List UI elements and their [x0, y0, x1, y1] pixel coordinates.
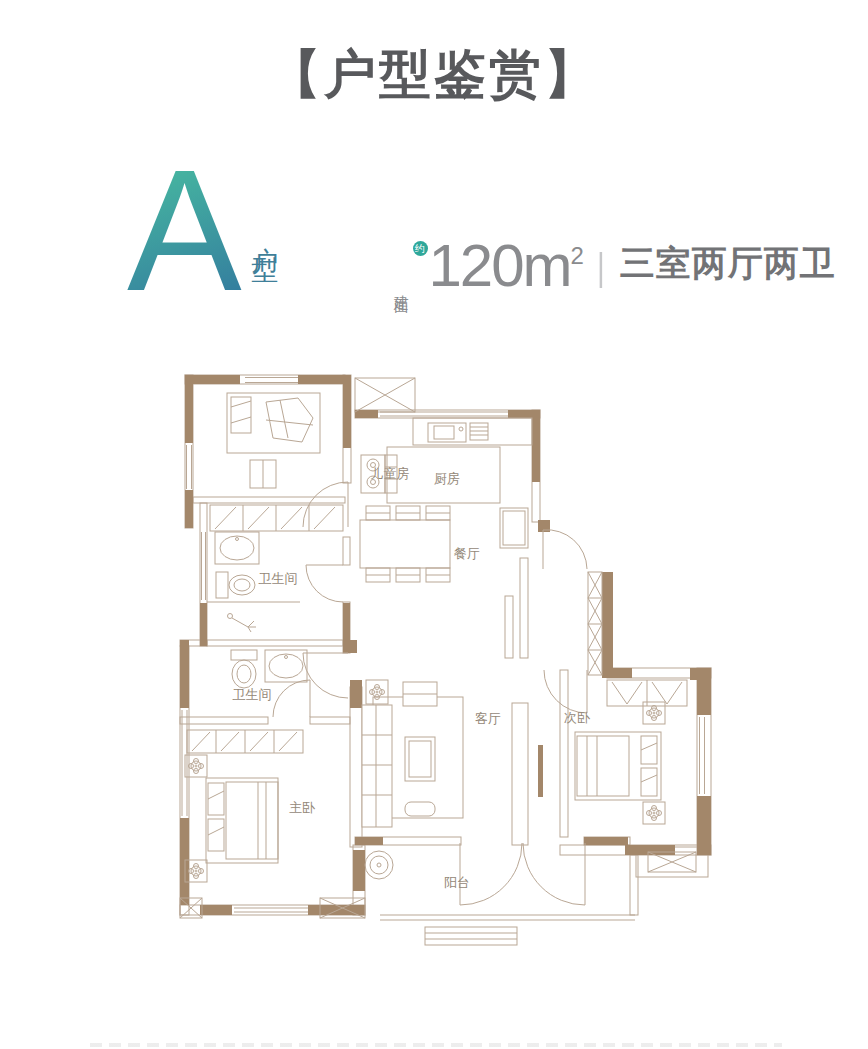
room-label: 主卧: [289, 800, 316, 815]
room-label: 阳台: [444, 875, 470, 890]
master-bed: [185, 755, 278, 882]
approx-badge: 约: [413, 241, 428, 256]
area-superscript: 2: [571, 242, 584, 269]
unit-spec: 建面 约 120m2 | 三室两厅两卫: [393, 242, 836, 290]
room-label: 儿童房: [371, 466, 410, 481]
windows: [182, 378, 705, 946]
layout-text: 三室两厅两卫: [620, 240, 836, 287]
dining-table: [360, 506, 450, 582]
bath2-fixtures: [231, 650, 307, 688]
room-label: 客厅: [475, 711, 501, 726]
child-desk: [250, 460, 276, 488]
page-title: 【户型鉴赏】: [0, 40, 868, 110]
unit-type-label: 户型: [247, 225, 283, 355]
room-label: 次卧: [564, 710, 591, 725]
washing-machine: [365, 851, 393, 879]
floorplan-svg: 儿童房厨房餐厅卫生间卫生间主卧客厅次卧阳台: [170, 350, 730, 960]
footer-disclaimer-cropped: [90, 1043, 782, 1047]
page: 【户型鉴赏】 A 户型 建面 约 120m2 | 三室两厅两卫: [0, 0, 868, 1049]
room-label: 餐厅: [454, 546, 480, 561]
room-label: 卫生间: [259, 571, 298, 586]
furniture: [185, 393, 665, 882]
walls-outline: [180, 375, 711, 915]
area-value: 120m2: [429, 243, 584, 290]
kitchen-counter: [361, 418, 532, 503]
child-bed: [227, 393, 320, 453]
room-label: 卫生间: [233, 687, 272, 702]
unit-header: A 户型: [127, 168, 283, 355]
area-number: 120m: [429, 232, 571, 299]
spec-divider: |: [597, 245, 605, 289]
area-label: 建面: [393, 283, 410, 289]
living-furniture: [362, 680, 543, 845]
unit-type-letter: A: [127, 168, 242, 355]
room-label: 厨房: [434, 471, 460, 486]
walls-solid: [180, 375, 711, 915]
fridge: [500, 508, 528, 548]
